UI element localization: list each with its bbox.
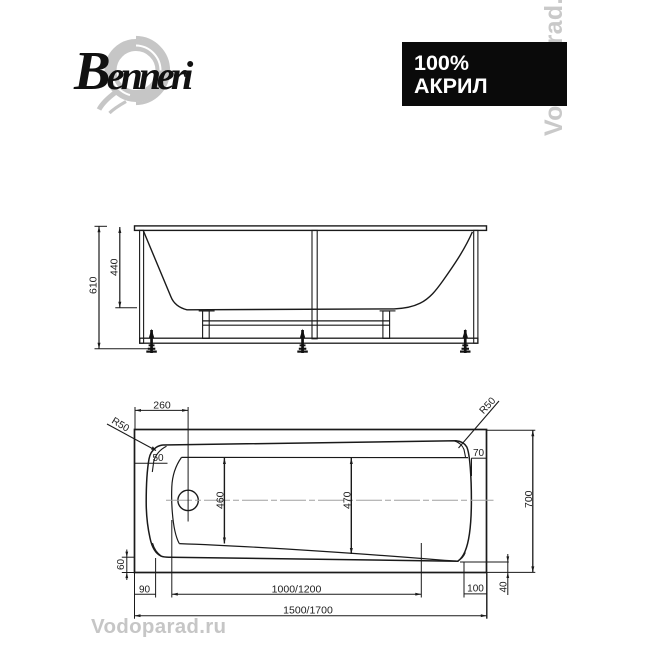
svg-text:R50: R50 bbox=[478, 395, 499, 416]
svg-text:100: 100 bbox=[467, 584, 484, 595]
svg-text:1000/1200: 1000/1200 bbox=[272, 583, 322, 595]
svg-text:440: 440 bbox=[109, 258, 121, 276]
svg-text:610: 610 bbox=[88, 276, 100, 294]
svg-text:50: 50 bbox=[153, 453, 165, 464]
svg-text:460: 460 bbox=[215, 491, 227, 509]
svg-text:R50: R50 bbox=[109, 416, 131, 435]
svg-text:90: 90 bbox=[139, 585, 151, 596]
svg-text:70: 70 bbox=[473, 448, 485, 459]
svg-text:60: 60 bbox=[116, 558, 127, 570]
svg-text:470: 470 bbox=[342, 491, 354, 509]
svg-text:40: 40 bbox=[499, 581, 510, 593]
svg-text:260: 260 bbox=[153, 399, 171, 411]
svg-text:700: 700 bbox=[523, 490, 535, 508]
svg-text:1500/1700: 1500/1700 bbox=[283, 605, 333, 617]
